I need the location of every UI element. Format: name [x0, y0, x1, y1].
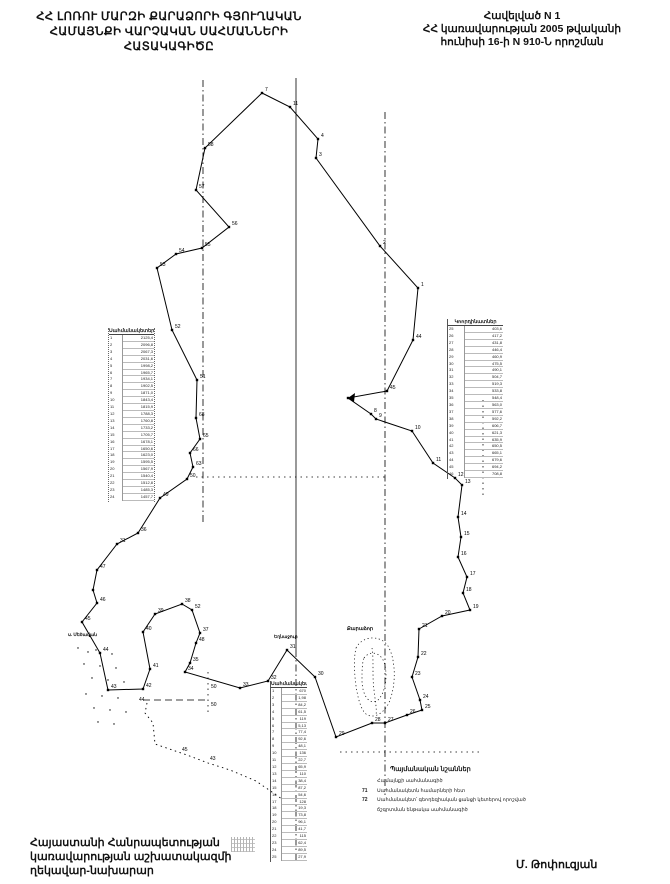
coordinate-table-row: 13110: [271, 771, 307, 778]
point-number-cell: 5: [109, 363, 123, 370]
point-number-cell: 17: [109, 446, 123, 453]
boundary-point-number: 49: [163, 492, 169, 498]
coordinate-value-cell: 548,4: [465, 395, 504, 402]
boundary-point: [411, 430, 413, 432]
coordinate-value-cell: 87,2: [282, 785, 307, 792]
hamlet-dot: [77, 647, 78, 648]
boundary-point-number: 13: [465, 479, 471, 485]
point-number-cell: 22: [271, 833, 282, 840]
coordinate-value-cell: 110: [282, 771, 307, 778]
coordinate-table-row: 1438,4: [271, 778, 307, 785]
coordinate-table-header: Կոորդինատներ: [448, 319, 503, 326]
coordinate-table-row: 25403,6: [448, 326, 503, 333]
boundary-point: [419, 699, 421, 701]
coordinate-table-row: 44679,6: [448, 457, 503, 464]
village-label: ս. Մեծավան: [68, 632, 97, 638]
coordinate-value-cell: 504,7: [465, 374, 504, 381]
boundary-point: [156, 267, 158, 269]
point-number-cell: 18: [109, 452, 123, 459]
boundary-point-number: 20: [445, 610, 451, 616]
coordinate-table-row: 171650,6: [109, 446, 154, 453]
coordinate-table-row: 36563,0: [448, 402, 503, 409]
coordinate-table-row: 27431,8: [448, 340, 503, 347]
coordinate-table-row: 892,6: [271, 736, 307, 743]
boundary-point-number: 14: [461, 511, 467, 517]
boundary-point-number: 52: [175, 324, 181, 330]
point-number-cell: 8: [271, 736, 282, 743]
point-number-cell: 20: [109, 466, 123, 473]
boundary-point: [460, 536, 462, 538]
boundary-point: [461, 484, 463, 486]
coordinate-value-cell: 490,1: [465, 367, 504, 374]
boundary-point-number: 1: [421, 282, 424, 288]
boundary-point-number: 36: [141, 527, 147, 533]
boundary-point-number: 2: [383, 240, 386, 246]
boundary-point-number: 35: [193, 657, 199, 663]
coordinate-table: Սահմանակետեր167021,98384,2461,5511965,13…: [270, 681, 307, 862]
coordinate-value-cell: 650,5: [465, 443, 504, 450]
boundary-point-number: 38: [185, 598, 191, 604]
coordinate-value-cell: 606,7: [465, 423, 504, 430]
point-number-cell: 23: [271, 840, 282, 847]
coordinate-table-header: Սահմանակետեր: [109, 328, 154, 335]
boundary-point: [411, 676, 413, 678]
coordinate-value-cell: 54,6: [282, 792, 307, 799]
point-number-cell: 16: [109, 439, 123, 446]
boundary-point: [286, 649, 288, 651]
point-number-cell: 6: [109, 370, 123, 377]
point-number-cell: 24: [271, 847, 282, 854]
boundary-point: [189, 452, 191, 454]
point-number-cell: 1: [109, 335, 123, 342]
boundary-point: [289, 106, 291, 108]
coordinate-value-cell: 38,4: [282, 778, 307, 785]
coordinate-value-cell: 62,4: [282, 840, 307, 847]
point-number-cell: 44: [448, 457, 465, 464]
coordinate-table-row: 181623,0: [109, 452, 154, 459]
point-number-cell: 9: [271, 743, 282, 750]
point-number-cell: 29: [448, 354, 465, 361]
point-number-cell: 21: [109, 473, 123, 480]
boundary-point-number: 23: [415, 671, 421, 677]
coordinate-value-cell: 1540,4: [123, 473, 155, 480]
coordinate-value-cell: 460,9: [465, 354, 504, 361]
signature-block: Հայաստանի Հանրապետության կառավարության ա…: [30, 836, 232, 878]
boundary-point: [418, 628, 420, 630]
point-number-cell: 8: [109, 383, 123, 390]
coordinate-value-cell: 446,4: [465, 347, 504, 354]
point-number-cell: 2: [109, 342, 123, 349]
boundary-point-number: 45: [390, 385, 396, 391]
coordinate-table-row: 81902,5: [109, 383, 154, 390]
boundary-point: [315, 157, 317, 159]
coordinate-table-row: 22096,8: [109, 342, 154, 349]
coordinate-value-cell: 1485,3: [123, 487, 155, 494]
boundary-point-number: 7: [265, 87, 268, 93]
coordinate-table-row: 241457,7: [109, 494, 154, 501]
coordinate-table-row: 29460,9: [448, 354, 503, 361]
signature-line-1: Հայաստանի Հանրապետության: [30, 836, 232, 850]
point-number-cell: 25: [448, 326, 465, 333]
coordinate-value-cell: 1902,5: [123, 383, 155, 390]
boundary-point: [154, 613, 156, 615]
point-number-cell: 24: [109, 494, 123, 501]
coordinate-value-cell: 621,3: [465, 430, 504, 437]
coordinate-table-row: 32067,3: [109, 349, 154, 356]
coordinate-value-cell: 1,98: [282, 695, 307, 702]
coordinate-value-cell: 84,2: [282, 702, 307, 709]
boundary-point: [175, 253, 177, 255]
point-number-cell: 36: [448, 402, 465, 409]
boundary-point-number: 22: [421, 651, 427, 657]
boundary-point: [462, 592, 464, 594]
boundary-point: [469, 609, 471, 611]
boundary-point: [195, 417, 197, 419]
boundary-point-number: 47: [100, 564, 106, 570]
coordinate-value-cell: 1567,9: [123, 466, 155, 473]
boundary-point-number: 24: [423, 694, 429, 700]
coordinate-table-row: 231485,3: [109, 487, 154, 494]
point-number-cell: 19: [109, 459, 123, 466]
boundary-point: [417, 287, 419, 289]
signature-line-2: կառավարության աշխատակազմի: [30, 850, 232, 864]
coordinate-table-row: 71934,1: [109, 376, 154, 383]
boundary-point: [149, 668, 151, 670]
coordinate-value-cell: 2031,6: [123, 356, 155, 363]
coordinate-table-row: 1973,8: [271, 812, 307, 819]
boundary-point-number: 65: [203, 433, 209, 439]
boundary-point: [267, 680, 269, 682]
map-legend: Պայմանական նշաններ Համայնքի սահմանագիծ 7…: [362, 765, 537, 815]
boundary-point: [384, 722, 386, 724]
hamlet-dot: [83, 663, 84, 664]
boundary-point-number: 50: [190, 473, 196, 479]
legend-item: Համայնքի սահմանագիծ: [362, 777, 537, 787]
lobe-point-number: 50: [211, 684, 217, 690]
boundary-point: [116, 543, 118, 545]
settlement-contour: [362, 653, 386, 702]
coordinate-table-row: 32504,7: [448, 374, 503, 381]
coordinate-table-row: 43665,1: [448, 450, 503, 457]
stamp-mark: [231, 837, 255, 852]
point-number-cell: 14: [271, 778, 282, 785]
lobe-point-number: 50: [211, 702, 217, 708]
boundary-point-number: 11: [293, 101, 298, 107]
cadastral-map-canvas: 7114321444589101112131415161718192021222…: [0, 0, 670, 884]
coordinate-table-row: 12125,4: [109, 335, 154, 342]
coordinate-value-cell: 1871,0: [123, 390, 155, 397]
boundary-point: [171, 329, 173, 331]
point-number-cell: 42: [448, 443, 465, 450]
boundary-point-number: 58: [208, 142, 214, 148]
boundary-point: [204, 147, 206, 149]
legend-marker: [362, 777, 377, 787]
legend-item-label: Սահմանակետ՝ գեոդեզիական ցանցի կետերով որ…: [377, 796, 526, 806]
coordinate-value-cell: 1934,1: [123, 376, 155, 383]
hamlet-dot: [117, 697, 118, 698]
coordinate-value-cell: 670: [282, 688, 307, 695]
legend-marker: 72: [362, 796, 377, 806]
coordinate-table-row: 2527,9: [271, 854, 307, 861]
hamlet-dot: [101, 695, 102, 696]
boundary-point: [107, 689, 109, 691]
signature-line-3: ղեկավար-նախարար: [30, 864, 232, 878]
boundary-point-number: 11: [436, 457, 441, 463]
coordinate-table-row: 31490,1: [448, 367, 503, 374]
coordinate-value-cell: 96,1: [282, 819, 307, 826]
hamlet-dot: [113, 723, 114, 724]
boundary-point-number: 4: [321, 133, 324, 139]
boundary-point: [142, 688, 144, 690]
coordinate-value-cell: 708,8: [465, 471, 504, 478]
boundary-point-number: 37: [203, 627, 209, 633]
coordinate-table-row: 1654,6: [271, 792, 307, 799]
coordinate-table-row: 45694,2: [448, 464, 503, 471]
point-number-cell: 38: [448, 416, 465, 423]
point-number-cell: 31: [448, 367, 465, 374]
boundary-point: [96, 569, 98, 571]
point-number-cell: 35: [448, 395, 465, 402]
coordinate-value-cell: 694,2: [465, 464, 504, 471]
point-number-cell: 12: [109, 411, 123, 418]
boundary-point-number: 26: [410, 709, 416, 715]
coordinate-value-cell: 27,9: [282, 854, 307, 861]
boundary-point: [96, 602, 98, 604]
boundary-point-number: 33: [243, 682, 249, 688]
boundary-point: [137, 532, 139, 534]
boundary-point-number: 57: [199, 184, 205, 190]
legend-item-label: Սահմանակետն համարների հետ: [377, 787, 465, 797]
point-number-cell: 4: [271, 709, 282, 716]
coordinate-table-row: 121788,3: [109, 411, 154, 418]
coordinate-value-cell: 41,7: [282, 826, 307, 833]
coordinate-table-row: 17128: [271, 799, 307, 806]
lobe-point-number: 45: [182, 747, 188, 753]
boundary-point: [192, 466, 194, 468]
point-number-cell: 27: [448, 340, 465, 347]
point-number-cell: 34: [448, 388, 465, 395]
hamlet-dot: [115, 667, 116, 668]
coordinate-table-row: 221512,8: [109, 480, 154, 487]
boundary-point: [201, 247, 203, 249]
point-number-cell: 9: [109, 390, 123, 397]
point-number-cell: 10: [109, 397, 123, 404]
coordinate-table-row: 34533,8: [448, 388, 503, 395]
boundary-point-number: 9: [379, 413, 382, 419]
boundary-point: [314, 676, 316, 678]
coordinate-table-row: 1670: [271, 688, 307, 695]
point-number-cell: 20: [271, 819, 282, 826]
legend-item-label: Համայնքի սահմանագիծ: [377, 777, 443, 787]
point-number-cell: 32: [448, 374, 465, 381]
signer-name: Մ. Թոփուզյան: [516, 858, 597, 871]
lobe-point-number: 43: [210, 756, 216, 762]
coordinate-value-cell: 403,6: [465, 326, 504, 333]
boundary-point-number: 21: [422, 623, 428, 629]
coordinate-value-cell: 635,9: [465, 437, 504, 444]
coordinate-table-row: 1122,7: [271, 757, 307, 764]
boundary-point-number: 29: [339, 731, 345, 737]
coordinate-table-row: 37577,6: [448, 409, 503, 416]
legend-item: 71 Սահմանակետն համարների հետ: [362, 787, 537, 797]
point-number-cell: 17: [271, 799, 282, 806]
coordinate-value-cell: 577,6: [465, 409, 504, 416]
boundary-point: [186, 478, 188, 480]
boundary-point-number: 30: [318, 671, 324, 677]
boundary-point-number: 46: [100, 597, 106, 603]
hamlet-dot: [97, 721, 98, 722]
coordinate-value-cell: 65,9: [282, 764, 307, 771]
boundary-point: [386, 390, 388, 392]
adjusted-boundary-dotted: [145, 703, 282, 799]
boundary-point-number: 34: [188, 666, 194, 672]
coordinate-table-row: 30475,5: [448, 361, 503, 368]
boundary-point-number: 51: [200, 374, 206, 380]
boundary-point: [417, 656, 419, 658]
boundary-point-number: 17: [470, 571, 476, 577]
coordinate-table-row: 1265,9: [271, 764, 307, 771]
boundary-point-number: 31: [120, 538, 126, 544]
coordinate-value-cell: 1650,6: [123, 446, 155, 453]
coordinate-table-row: 461,5: [271, 709, 307, 716]
coordinate-table-row: 2362,4: [271, 840, 307, 847]
point-number-cell: 28: [448, 347, 465, 354]
boundary-point: [195, 642, 197, 644]
boundary-point: [159, 497, 161, 499]
point-number-cell: 26: [448, 333, 465, 340]
boundary-point-number: 53: [160, 262, 166, 268]
coordinate-table: Կոորդինատներ25403,626417,227431,828446,4…: [447, 319, 503, 479]
boundary-point-number: 40: [146, 626, 152, 632]
point-number-cell: 21: [271, 826, 282, 833]
point-number-cell: 15: [271, 785, 282, 792]
boundary-point: [199, 438, 201, 440]
point-number-cell: 11: [109, 404, 123, 411]
coordinate-value-cell: 1678,1: [123, 439, 155, 446]
boundary-point: [379, 245, 381, 247]
point-number-cell: 40: [448, 430, 465, 437]
boundary-point: [92, 589, 94, 591]
boundary-point-number: 55: [205, 242, 211, 248]
coordinate-table-row: 65,13: [271, 723, 307, 730]
boundary-point-number: 45: [85, 616, 91, 622]
settlement-contour: [372, 648, 376, 716]
point-number-cell: 15: [109, 432, 123, 439]
coordinate-value-cell: 61,5: [282, 709, 307, 716]
legend-marker: 71: [362, 787, 377, 797]
boundary-point: [457, 516, 459, 518]
hamlet-dot: [93, 707, 94, 708]
point-number-cell: 3: [271, 702, 282, 709]
point-number-cell: 1: [271, 688, 282, 695]
coordinate-value-cell: 2096,8: [123, 342, 155, 349]
coordinate-table-row: 28446,4: [448, 347, 503, 354]
boundary-point: [441, 615, 443, 617]
hamlet-dot: [111, 653, 112, 654]
coordinate-table-row: 2489,5: [271, 847, 307, 854]
boundary-point: [81, 621, 83, 623]
coordinate-table-row: 161678,1: [109, 439, 154, 446]
coordinate-value-cell: 89,5: [282, 847, 307, 854]
boundary-point: [189, 662, 191, 664]
point-number-cell: 22: [109, 480, 123, 487]
hamlet-dot: [99, 665, 100, 666]
boundary-point-number: 68: [199, 412, 205, 418]
point-number-cell: 41: [448, 437, 465, 444]
boundary-point: [371, 722, 373, 724]
coordinate-table-row: 1819,3: [271, 805, 307, 812]
point-number-cell: 3: [109, 349, 123, 356]
scanned-map-page: ՀՀ ԼՈՌՈՒ ՄԱՐԶԻ ՔԱՐԱՁՈՐԻ ԳՅՈՒՂԱԿԱՆ ՀԱՄԱՅՆ…: [0, 0, 670, 884]
coordinate-value-cell: 1998,2: [123, 363, 155, 370]
coordinate-value-cell: 19,3: [282, 805, 307, 812]
boundary-point: [195, 189, 197, 191]
boundary-point-number: 31: [290, 644, 296, 650]
boundary-point-number: 43: [111, 684, 117, 690]
boundary-point: [196, 379, 198, 381]
coordinate-value-cell: 77,4: [282, 729, 307, 736]
boundary-point: [432, 462, 434, 464]
coordinate-table-row: 151705,7: [109, 432, 154, 439]
legend-marker: [362, 806, 377, 816]
hamlet-dot: [87, 651, 88, 652]
coordinate-value-cell: 73,8: [282, 812, 307, 819]
boundary-point-number: 3: [319, 152, 322, 158]
legend-item: 72 Սահմանակետ՝ գեոդեզիական ցանցի կետերով…: [362, 796, 537, 806]
coordinate-value-cell: 22,7: [282, 757, 307, 764]
point-number-cell: 19: [271, 812, 282, 819]
boundary-point: [239, 687, 241, 689]
point-number-cell: 4: [109, 356, 123, 363]
point-number-cell: 18: [271, 805, 282, 812]
boundary-point: [335, 736, 337, 738]
coordinate-value-cell: 475,5: [465, 361, 504, 368]
boundary-point-number: 19: [473, 604, 479, 610]
coordinate-value-cell: 679,6: [465, 457, 504, 464]
boundary-point-number: 28: [375, 717, 381, 723]
boundary-point-number: 8: [374, 408, 377, 414]
point-number-cell: 30: [448, 361, 465, 368]
boundary-point-number: 39: [158, 608, 164, 614]
boundary-point: [261, 92, 263, 94]
boundary-point: [181, 603, 183, 605]
coordinate-value-cell: 92,6: [282, 736, 307, 743]
coordinate-value-cell: 592,2: [465, 416, 504, 423]
coordinate-table-row: 1587,2: [271, 785, 307, 792]
coordinate-table: Սահմանակետեր12125,422096,832067,342031,6…: [108, 328, 155, 502]
point-number-cell: 16: [271, 792, 282, 799]
boundary-point: [421, 709, 423, 711]
village-label: Քարաձոր: [347, 626, 373, 632]
coordinate-value-cell: 431,8: [465, 340, 504, 347]
coordinate-value-cell: 1760,8: [123, 418, 155, 425]
coordinate-value-cell: 1788,3: [123, 411, 155, 418]
boundary-point-number: 16: [461, 551, 467, 557]
coordinate-table-row: 211540,4: [109, 473, 154, 480]
hamlet-dot: [123, 681, 124, 682]
legend-item: ճշգրտման ենթակա սահմանագիծ: [362, 806, 537, 816]
boundary-point-number: 54: [179, 248, 185, 254]
coordinate-table-row: 40621,3: [448, 430, 503, 437]
boundary-point: [457, 556, 459, 558]
coordinate-table-row: 5119: [271, 716, 307, 723]
boundary-point-number: 15: [464, 531, 470, 537]
coordinate-value-cell: 519,3: [465, 381, 504, 388]
point-number-cell: 13: [271, 771, 282, 778]
boundary-point-number: 56: [232, 221, 238, 227]
coordinate-table-row: 46708,8: [448, 471, 503, 478]
boundary-point-number: 42: [146, 683, 152, 689]
